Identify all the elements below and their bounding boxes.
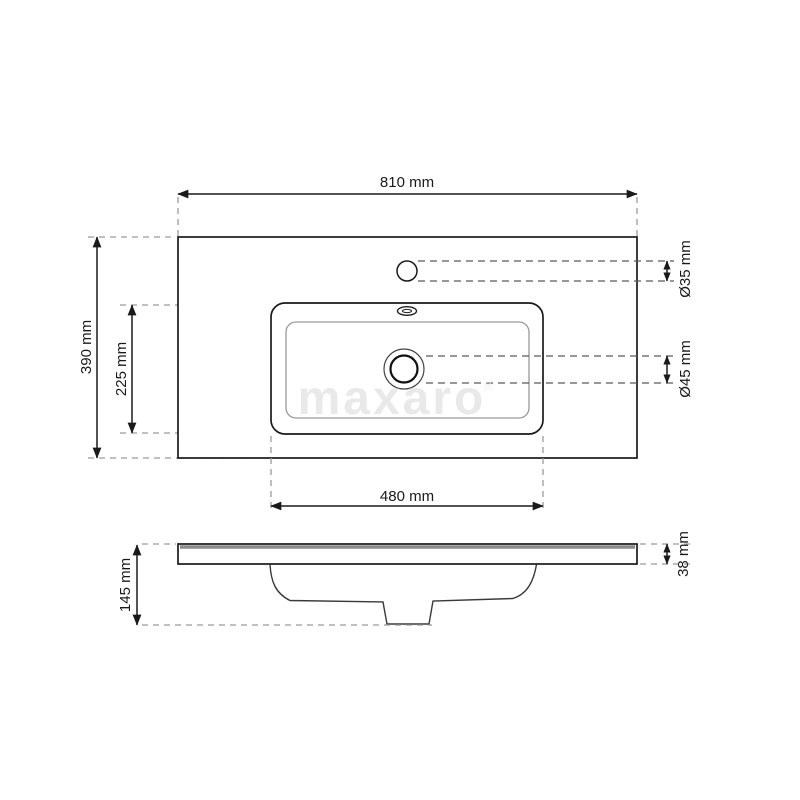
watermark-registered-icon: ® <box>484 381 492 393</box>
basin-width-dimension-label: 480 mm <box>380 488 434 505</box>
drain-diameter-label: Ø45 mm <box>677 340 694 398</box>
top-view: 810 mm 390 mm 225 mm <box>78 174 694 512</box>
drawing-canvas: 810 mm 390 mm 225 mm <box>0 0 800 800</box>
basin-offset-dimension-label: 225 mm <box>113 342 130 396</box>
bowl-profile <box>270 565 537 625</box>
side-view: 145 mm 38 mm <box>117 531 692 625</box>
overflow-outer <box>398 307 417 316</box>
faucet-hole-diameter-label: Ø35 mm <box>677 240 694 298</box>
depth-dimension-label: 390 mm <box>78 320 95 374</box>
washbasin-technical-drawing: 810 mm 390 mm 225 mm <box>0 0 800 800</box>
dim-thickness-38: 38 mm <box>640 531 692 577</box>
watermark: maxaro ® <box>298 372 492 425</box>
dim-width-810: 810 mm <box>178 174 637 236</box>
width-dimension-label: 810 mm <box>380 174 434 191</box>
watermark-text: maxaro <box>298 372 487 425</box>
faucet-hole <box>397 261 417 281</box>
overflow-slot <box>398 307 417 316</box>
height-dimension-label: 145 mm <box>117 558 134 612</box>
thickness-dimension-label: 38 mm <box>675 531 692 577</box>
